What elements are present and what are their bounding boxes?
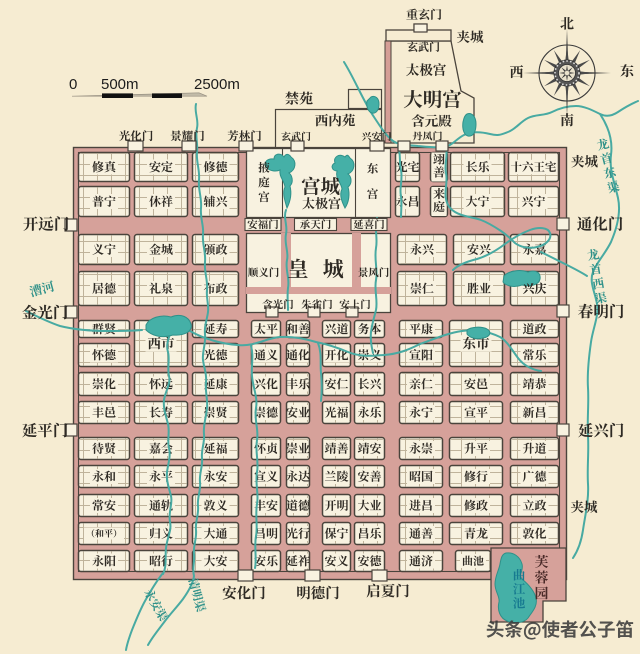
svg-text:2500m: 2500m	[194, 76, 240, 93]
svg-text:0: 0	[69, 76, 77, 93]
svg-text:500m: 500m	[101, 76, 139, 93]
